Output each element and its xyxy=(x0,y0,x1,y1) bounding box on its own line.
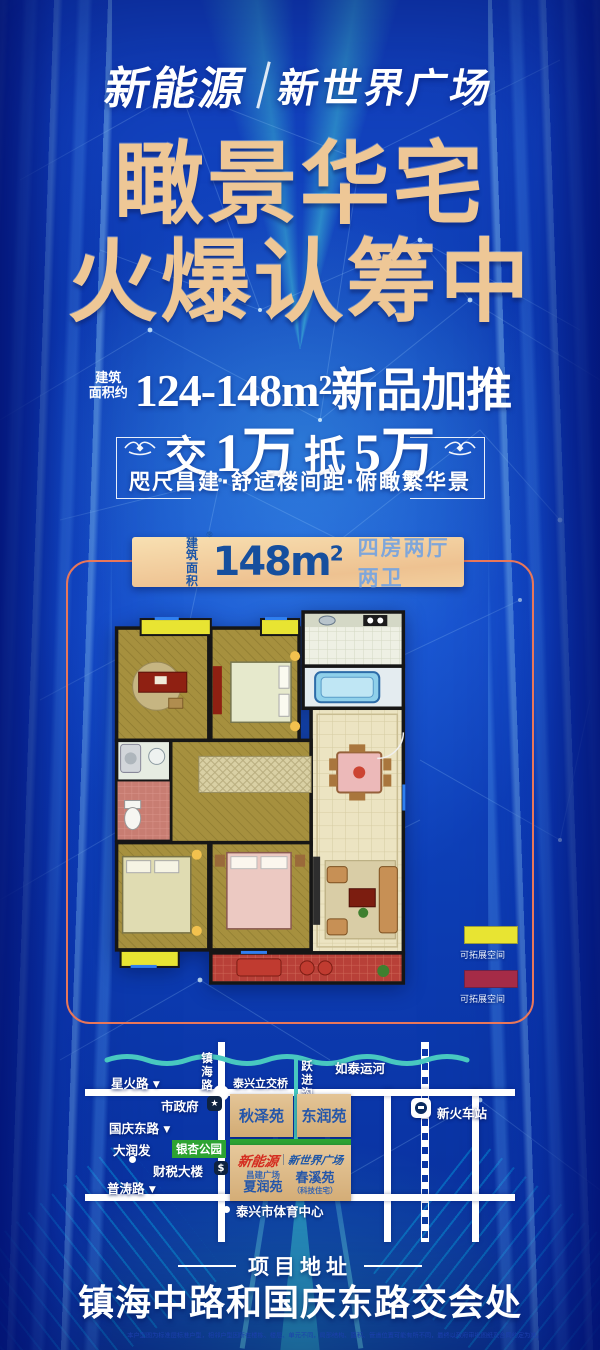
project-logo-divider xyxy=(283,1154,284,1165)
headline: 瞰景华宅 火爆认筹中 xyxy=(0,136,600,332)
road-vertical-east xyxy=(384,1089,391,1242)
block-dongrunyuan: 东润苑 xyxy=(297,1094,351,1137)
floorplan-illustration xyxy=(110,604,434,990)
sports-center-dot xyxy=(223,1206,230,1213)
area-note: 建筑 面积约 xyxy=(89,372,128,402)
tagline: 咫尺昌建·舒适楼间距·俯瞰繁华景 xyxy=(0,466,600,496)
label-flyover: 泰兴立交桥 xyxy=(233,1075,288,1091)
project-sub-blocks: 昌建广场 夏润苑 春溪苑 （科技住宅） xyxy=(243,1172,337,1197)
disclaimer: 本户型图为标准层标准户型，相邻户型因所在楼栋、楼层、单元不同，局部结构、面积、管… xyxy=(0,1324,600,1343)
flourish-icon xyxy=(123,439,157,457)
logo: 新能源 新世界广场 xyxy=(0,52,600,117)
registered-mark: ® xyxy=(206,531,214,539)
label-train-station: 新火车站 xyxy=(437,1103,487,1122)
headline-line2: 火爆认筹中 xyxy=(0,234,600,332)
label-tax-building: 财税大楼 xyxy=(153,1161,203,1180)
corridor-tile xyxy=(199,756,311,792)
label-putao-road: 普涛路 ▼ xyxy=(107,1178,156,1197)
title-line-left xyxy=(178,1265,236,1267)
label-guoqing-road: 国庆东路 ▼ xyxy=(109,1118,170,1137)
floorplan-legend: 可拓展空间 可拓展空间 xyxy=(460,926,532,1014)
block-qiuzeyuan: 秋泽苑 xyxy=(230,1094,293,1137)
logo-project: 新世界广场 xyxy=(273,56,498,114)
logo-divider xyxy=(256,61,271,108)
legend-swatch-yellow xyxy=(464,926,518,944)
logo-brand: 新能源 xyxy=(101,52,253,117)
flourish-icon xyxy=(443,439,477,457)
legend-swatch-red xyxy=(464,970,518,988)
label-government: 市政府 xyxy=(161,1096,199,1115)
train-station-icon xyxy=(411,1098,431,1118)
block-ginkgo-park: 银杏公园 xyxy=(172,1140,226,1158)
bay-window xyxy=(261,619,299,635)
legend-label: 可拓展空间 xyxy=(460,948,532,961)
label-zhenhai-road: 镇海路 xyxy=(199,1052,215,1093)
headline-line1: 瞰景华宅 xyxy=(0,136,600,234)
unit-banner: 建筑 面积 ® 148m2 四房两厅两卫 xyxy=(132,537,464,587)
project-address: 镇海中路和国庆东路交会处 xyxy=(0,1274,600,1326)
project-block: 新能源 新世界广场 昌建广场 夏润苑 春溪苑 （科技住宅） xyxy=(230,1145,351,1201)
tax-icon: $ xyxy=(214,1161,228,1175)
government-icon: ★ xyxy=(207,1096,222,1111)
location-map: 星火路 ▼ 镇海路 跃进沟 如泰运河 泰兴立交桥 市政府 ★ 国庆东路 ▼ 秋泽… xyxy=(85,1042,515,1242)
title-line-right xyxy=(364,1265,422,1267)
project-name: 新世界广场 xyxy=(287,1152,344,1168)
label-sports-center: 泰兴市体育中心 xyxy=(236,1201,324,1220)
block-chunxiyuan: 春溪苑 （科技住宅） xyxy=(293,1172,338,1196)
bay-window xyxy=(121,951,179,967)
unit-area-value: 148m2 xyxy=(213,539,342,585)
bay-window xyxy=(141,619,211,635)
block-xiarunyuan: 昌建广场 夏润苑 xyxy=(243,1172,282,1197)
darunfa-dot xyxy=(129,1156,136,1163)
legend-label: 可拓展空间 xyxy=(460,992,532,1005)
label-canal: 如泰运河 xyxy=(335,1058,385,1077)
poster: 新能源 新世界广场 瞰景华宅 火爆认筹中 建筑 面积约 124-148m²新品加… xyxy=(0,0,600,1350)
label-xinghuo-road: 星火路 ▼ xyxy=(111,1073,160,1092)
unit-layout-desc: 四房两厅两卫 xyxy=(358,532,464,592)
unit-area-label: 建筑 面积 ® xyxy=(186,537,205,587)
project-logo-row: 新能源 新世界广场 xyxy=(238,1150,343,1170)
project-brand: 新能源 xyxy=(237,1150,280,1170)
